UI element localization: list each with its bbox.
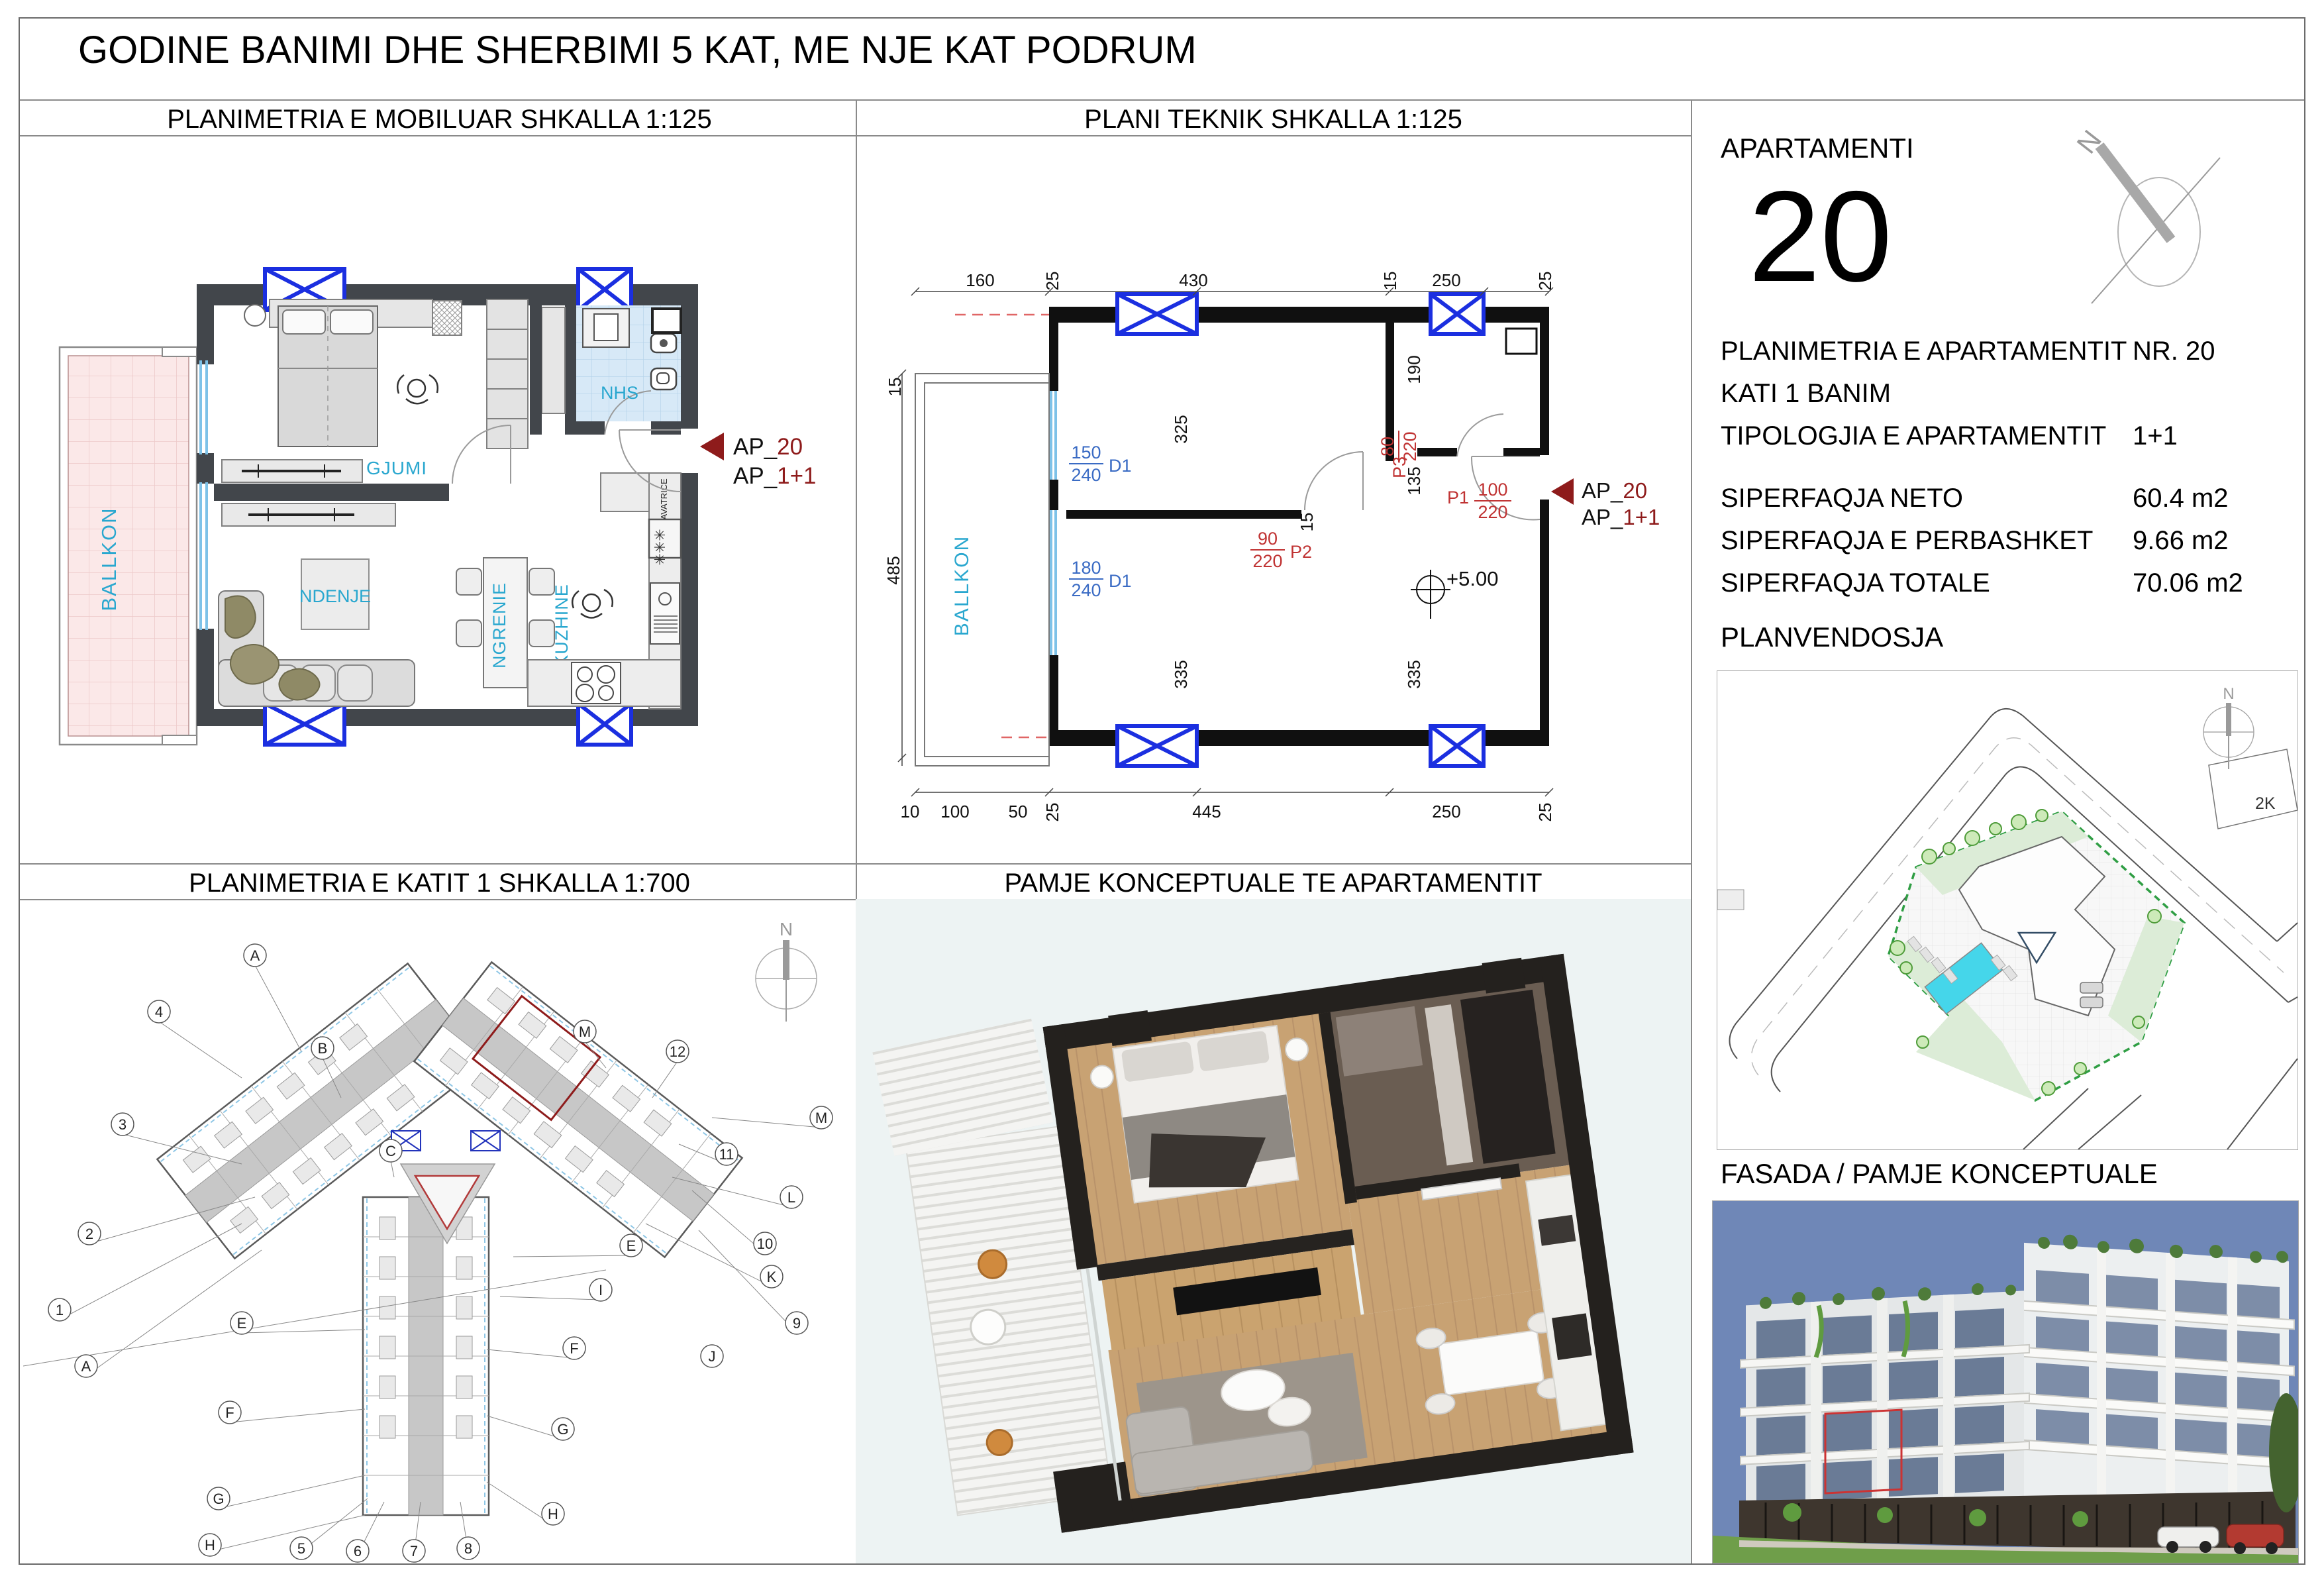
svg-text:A: A xyxy=(250,947,260,964)
svg-text:9: 9 xyxy=(793,1315,801,1332)
svg-text:AP_1+1: AP_1+1 xyxy=(733,463,817,489)
svg-text:E: E xyxy=(237,1315,247,1332)
svg-text:F: F xyxy=(225,1404,234,1421)
panel-title-mobiluar: PLANIMETRIA E MOBILUAR SHKALLA 1:125 xyxy=(23,105,856,134)
bath-label: NHS xyxy=(601,383,638,403)
svg-text:G: G xyxy=(557,1421,568,1438)
dim: 15 xyxy=(885,378,905,397)
site-plan: 2K N xyxy=(1717,670,2298,1150)
svg-text:F: F xyxy=(570,1340,578,1357)
svg-text:H: H xyxy=(205,1537,215,1554)
window-label-2: 180 240 D1 xyxy=(1069,558,1132,600)
dim: 25 xyxy=(1042,272,1062,291)
svg-text:1: 1 xyxy=(56,1302,64,1318)
dim: 325 xyxy=(1171,415,1191,443)
balcony-glazing xyxy=(201,360,207,630)
washer-label: LAVATRICE xyxy=(659,478,669,525)
dim: 250 xyxy=(1432,270,1460,290)
svg-text:P2: P2 xyxy=(1290,542,1312,562)
dim: 160 xyxy=(966,270,994,290)
dim: 190 xyxy=(1404,355,1424,384)
svg-text:AP_1+1: AP_1+1 xyxy=(1582,505,1660,529)
balcony-label: BALLKON xyxy=(97,507,121,611)
svg-text:90: 90 xyxy=(1258,529,1278,549)
divider xyxy=(20,99,2304,101)
ap-typology: 1+1 xyxy=(777,463,816,489)
ap-prefix: AP_ xyxy=(733,463,778,489)
svg-text:180: 180 xyxy=(1071,558,1101,578)
info-row: SIPERFAQJA E PERBASHKET9.66 m2 xyxy=(1721,526,2297,559)
svg-text:D1: D1 xyxy=(1109,571,1132,591)
svg-text:240: 240 xyxy=(1071,580,1101,600)
svg-text:N: N xyxy=(780,919,793,939)
svg-text:6: 6 xyxy=(354,1543,362,1559)
drawing-sheet: GODINE BANIMI DHE SHERBIMI 5 KAT, ME NJE… xyxy=(0,0,2324,1582)
parcel-2k-label: 2K xyxy=(2255,794,2276,813)
page-title: GODINE BANIMI DHE SHERBIMI 5 KAT, ME NJE… xyxy=(78,28,1197,72)
person-figure xyxy=(397,375,438,403)
ap-arrow xyxy=(700,433,724,460)
svg-text:E: E xyxy=(627,1238,636,1254)
svg-text:5: 5 xyxy=(297,1540,305,1557)
svg-text:240: 240 xyxy=(1071,465,1101,485)
dim: 25 xyxy=(1042,803,1062,822)
dim: 50 xyxy=(1009,802,1028,821)
svg-text:B: B xyxy=(318,1040,328,1057)
bedroom: DHOME GJUMI xyxy=(244,299,462,478)
wall xyxy=(530,305,542,435)
hall-closet xyxy=(542,307,565,413)
dim-lines xyxy=(898,288,1553,796)
svg-text:P3: P3 xyxy=(1389,456,1409,478)
svg-text:H: H xyxy=(548,1506,558,1522)
dim: 445 xyxy=(1192,802,1221,821)
svg-text:L: L xyxy=(787,1189,795,1206)
svg-text:D1: D1 xyxy=(1109,456,1132,476)
info-row: SIPERFAQJA NETO60.4 m2 xyxy=(1721,484,2297,517)
apartamenti-label: APARTAMENTI xyxy=(1721,132,1914,164)
bathroom: NHS xyxy=(565,305,681,435)
key-floor-plan: A 4 B 3 C 2 1 A E F G H 5 6 7 8 H G F I xyxy=(23,899,856,1563)
dim: 430 xyxy=(1179,270,1207,290)
info-row: PLANIMETRIA E APARTAMENTITNR. 20 xyxy=(1721,337,2297,370)
svg-text:4: 4 xyxy=(155,1004,163,1020)
building-y xyxy=(157,962,742,1515)
furnished-plan: BALLKON xyxy=(23,135,856,863)
panel-title-katit: PLANIMETRIA E KATIT 1 SHKALLA 1:700 xyxy=(23,869,856,898)
svg-text:AP_20: AP_20 xyxy=(733,434,803,460)
north-arrow-katit: N xyxy=(756,919,817,1022)
info-row: TIPOLOGJIA E APARTAMENTIT1+1 xyxy=(1721,421,2297,454)
dim: 15 xyxy=(1297,513,1317,532)
window-label-1: 150 240 D1 xyxy=(1069,443,1132,485)
svg-text:N: N xyxy=(2223,685,2234,703)
technical-plan: BALLKON xyxy=(856,135,1691,863)
concept-3d-view xyxy=(856,899,1691,1563)
kitchen-label: KUZHINE xyxy=(552,584,572,667)
info-row: SIPERFAQJA TOTALE70.06 m2 xyxy=(1721,568,2297,602)
ap-arrow xyxy=(1551,478,1574,505)
dim: 15 xyxy=(1380,272,1400,291)
svg-text:M: M xyxy=(815,1110,827,1126)
svg-text:220: 220 xyxy=(1478,502,1507,522)
svg-text:M: M xyxy=(579,1024,591,1040)
dim: 335 xyxy=(1171,660,1191,688)
svg-text:C: C xyxy=(385,1143,396,1159)
panel-title-pamje: PAMJE KONCEPTUALE TE APARTAMENTIT xyxy=(856,869,1691,898)
svg-text:8: 8 xyxy=(464,1540,472,1557)
dining-label: NGRENIE xyxy=(489,582,509,668)
balcony: BALLKON xyxy=(60,347,197,745)
panel-title-teknik: PLANI TEKNIK SHKALLA 1:125 xyxy=(856,105,1691,134)
svg-text:J: J xyxy=(709,1348,716,1365)
level-marker: +5.00 xyxy=(1411,567,1498,619)
dim: 250 xyxy=(1432,802,1460,821)
facade-render xyxy=(1712,1200,2299,1563)
svg-text:7: 7 xyxy=(410,1543,418,1559)
dim: 100 xyxy=(940,802,969,821)
info-row: KATI 1 BANIM xyxy=(1721,379,2297,412)
svg-text:80: 80 xyxy=(1378,437,1397,456)
north-arrow-sidebar: N xyxy=(2060,126,2245,318)
svg-text:+5.00: +5.00 xyxy=(1446,567,1498,590)
svg-text:12: 12 xyxy=(670,1043,685,1060)
person-figure xyxy=(572,590,613,618)
facade-right-block xyxy=(2019,1230,2294,1520)
planvendosja-title: PLANVENDOSJA xyxy=(1721,621,1943,653)
living-room: NDENJE xyxy=(219,559,415,706)
divider xyxy=(1691,99,1692,1563)
svg-text:G: G xyxy=(213,1491,224,1507)
svg-text:3: 3 xyxy=(119,1116,126,1133)
dim: 335 xyxy=(1404,660,1424,688)
svg-text:P1: P1 xyxy=(1447,488,1469,507)
svg-text:11: 11 xyxy=(719,1146,734,1163)
svg-text:AP_20: AP_20 xyxy=(1582,478,1647,503)
svg-text:A: A xyxy=(81,1358,91,1375)
dim: 25 xyxy=(1535,272,1555,291)
svg-text:10: 10 xyxy=(757,1236,773,1252)
dim: 25 xyxy=(1535,803,1555,822)
apartment-number: 20 xyxy=(1748,172,1892,301)
svg-text:2: 2 xyxy=(85,1226,93,1242)
ap-prefix: AP_ xyxy=(733,434,778,460)
svg-text:150: 150 xyxy=(1071,443,1101,462)
entry: AP_20 AP_1+1 xyxy=(619,430,817,492)
door-label-p1: P1 100 220 xyxy=(1447,480,1511,522)
living-label: NDENJE xyxy=(299,586,371,606)
svg-text:220: 220 xyxy=(1252,551,1282,571)
wardrobe xyxy=(487,299,528,448)
dim: 10 xyxy=(901,802,920,821)
svg-text:K: K xyxy=(767,1269,777,1285)
svg-text:100: 100 xyxy=(1478,480,1507,500)
balcony-label: BALLKON xyxy=(951,535,973,636)
balcony-outline xyxy=(915,374,1049,766)
svg-text:I: I xyxy=(599,1282,603,1298)
stove-marks: ✳✳✳ xyxy=(652,529,668,565)
dim: 485 xyxy=(884,556,903,584)
door-label-p2: 90 220 P2 xyxy=(1250,529,1312,571)
facade-left-block xyxy=(1741,1279,2029,1524)
fasada-title: FASADA / PAMJE KONCEPTUALE xyxy=(1721,1158,2158,1190)
ap-number: 20 xyxy=(777,434,803,460)
